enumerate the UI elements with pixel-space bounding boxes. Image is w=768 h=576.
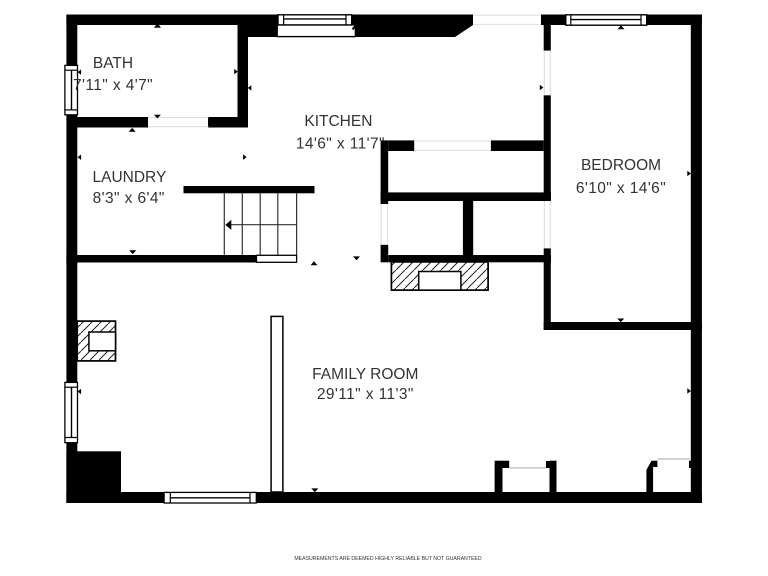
svg-text:BEDROOM: BEDROOM bbox=[581, 157, 661, 174]
svg-text:KITCHEN: KITCHEN bbox=[304, 113, 372, 130]
svg-text:7'11" x 4'7": 7'11" x 4'7" bbox=[73, 77, 153, 94]
svg-text:MEASUREMENTS ARE DEEMED HIGHLY: MEASUREMENTS ARE DEEMED HIGHLY RELIABLE … bbox=[294, 556, 482, 562]
svg-text:29'11" x 11'3": 29'11" x 11'3" bbox=[317, 386, 414, 403]
svg-text:FAMILY ROOM: FAMILY ROOM bbox=[312, 366, 418, 383]
svg-text:BATH: BATH bbox=[93, 55, 133, 72]
svg-text:6'10" x 14'6": 6'10" x 14'6" bbox=[576, 180, 666, 197]
svg-text:14'6" x 11'7": 14'6" x 11'7" bbox=[296, 135, 385, 152]
svg-text:8'3" x 6'4": 8'3" x 6'4" bbox=[93, 190, 165, 207]
svg-text:LAUNDRY: LAUNDRY bbox=[93, 169, 167, 186]
